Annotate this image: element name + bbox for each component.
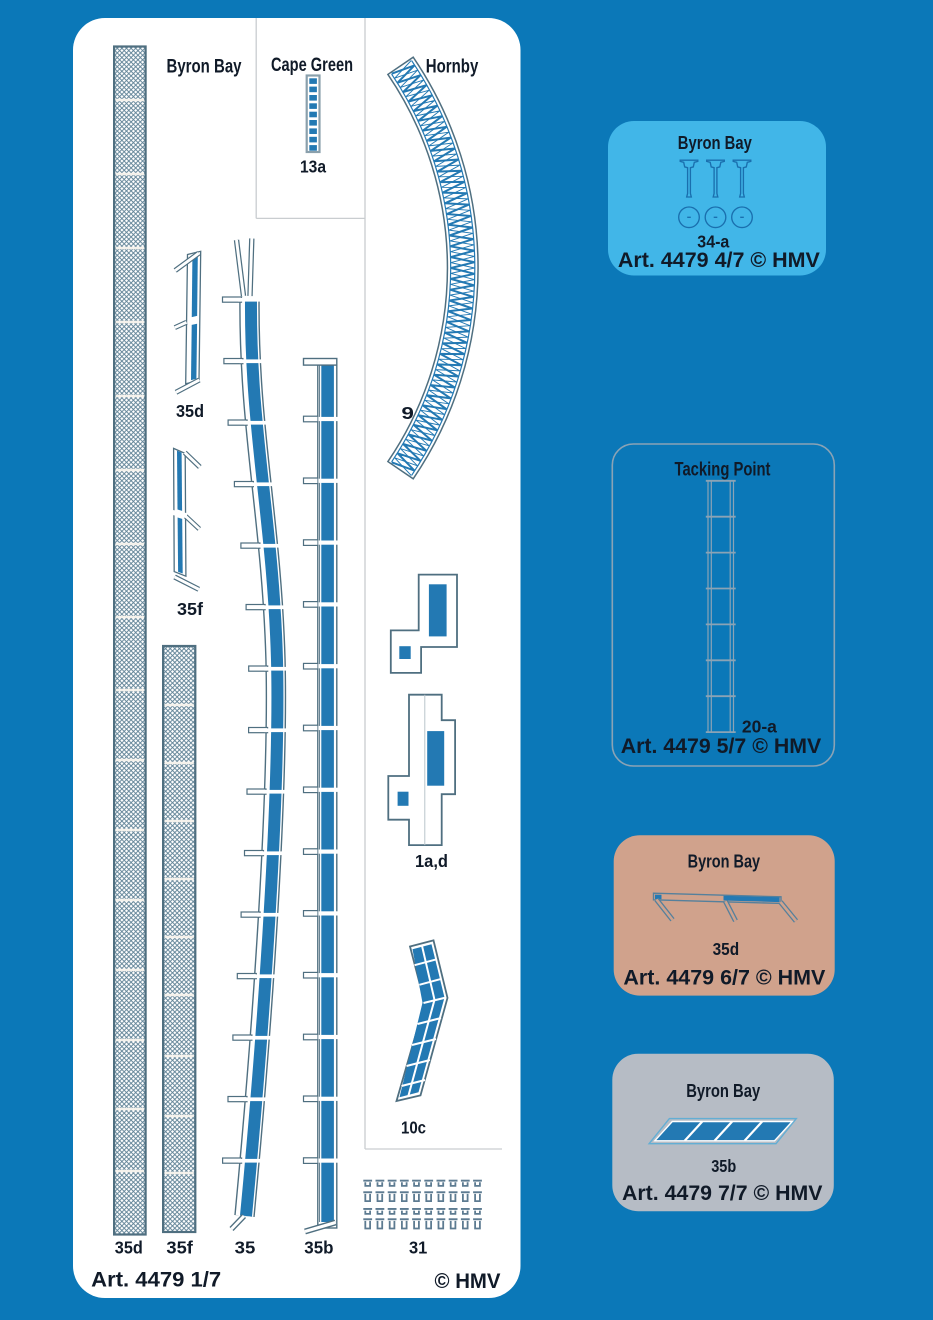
- svg-text:35b: 35b: [304, 1238, 333, 1258]
- svg-text:Byron Bay: Byron Bay: [688, 850, 761, 871]
- svg-text:© HMV: © HMV: [435, 1269, 502, 1293]
- svg-text:Art. 4479 4/7 © HMV: Art. 4479 4/7 © HMV: [618, 248, 821, 272]
- svg-text:Hornby: Hornby: [426, 56, 479, 78]
- svg-text:Tacking Point: Tacking Point: [675, 460, 772, 481]
- svg-text:Byron Bay: Byron Bay: [686, 1080, 761, 1101]
- svg-text:Art. 4479 5/7 © HMV: Art. 4479 5/7 © HMV: [621, 734, 822, 758]
- svg-text:35d: 35d: [713, 939, 740, 959]
- svg-text:Byron Bay: Byron Bay: [678, 132, 753, 153]
- svg-text:Art. 4479 1/7: Art. 4479 1/7: [91, 1268, 221, 1292]
- svg-text:35d: 35d: [176, 401, 204, 421]
- svg-text:1a,d: 1a,d: [415, 851, 448, 871]
- svg-text:35b: 35b: [711, 1156, 736, 1176]
- svg-text:Cape Green: Cape Green: [271, 54, 353, 76]
- svg-text:13a: 13a: [300, 157, 326, 177]
- svg-text:Byron Bay: Byron Bay: [167, 56, 242, 78]
- svg-text:10c: 10c: [401, 1117, 426, 1137]
- svg-text:35d: 35d: [115, 1238, 143, 1258]
- svg-text:Art. 4479 6/7 © HMV: Art. 4479 6/7 © HMV: [623, 965, 826, 989]
- svg-text:31: 31: [409, 1238, 428, 1258]
- svg-text:35: 35: [235, 1238, 256, 1258]
- svg-text:35f: 35f: [177, 599, 203, 619]
- svg-text:Art. 4479 7/7 © HMV: Art. 4479 7/7 © HMV: [622, 1181, 823, 1205]
- svg-text:9: 9: [401, 403, 414, 423]
- svg-text:35f: 35f: [166, 1238, 193, 1258]
